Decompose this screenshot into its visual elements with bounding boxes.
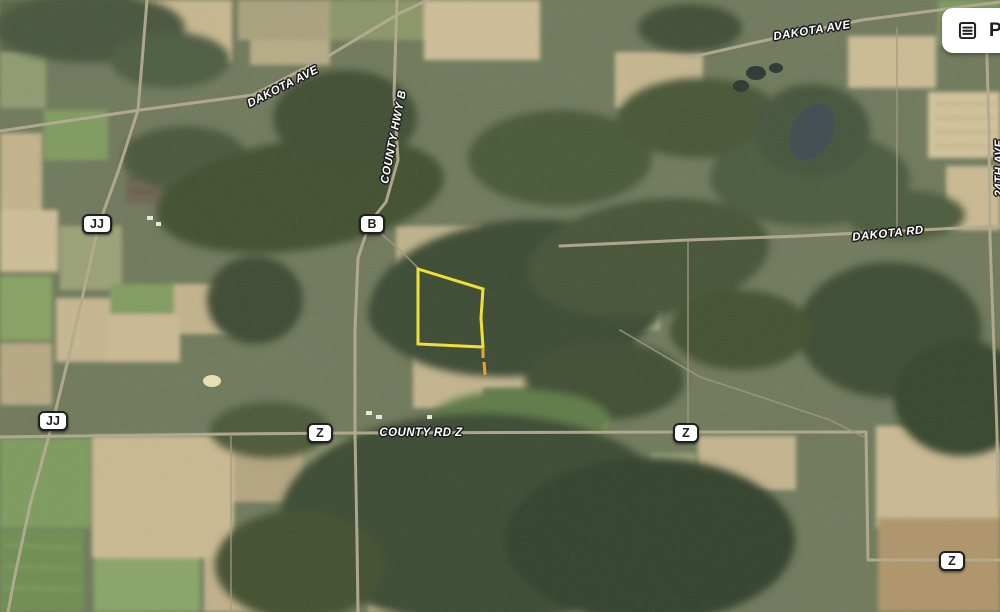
map-canvas[interactable] (0, 0, 1000, 612)
report-button-label: P (989, 20, 1000, 42)
document-list-icon (957, 20, 978, 41)
satellite-terrain (0, 0, 1000, 612)
parcel-report-button[interactable]: P (942, 8, 1000, 53)
map-app-window: DAKOTA AVECOUNTY HWY BDAKOTA AVEDAKOTA R… (0, 0, 1000, 612)
parcel-tail-segment (484, 362, 485, 375)
